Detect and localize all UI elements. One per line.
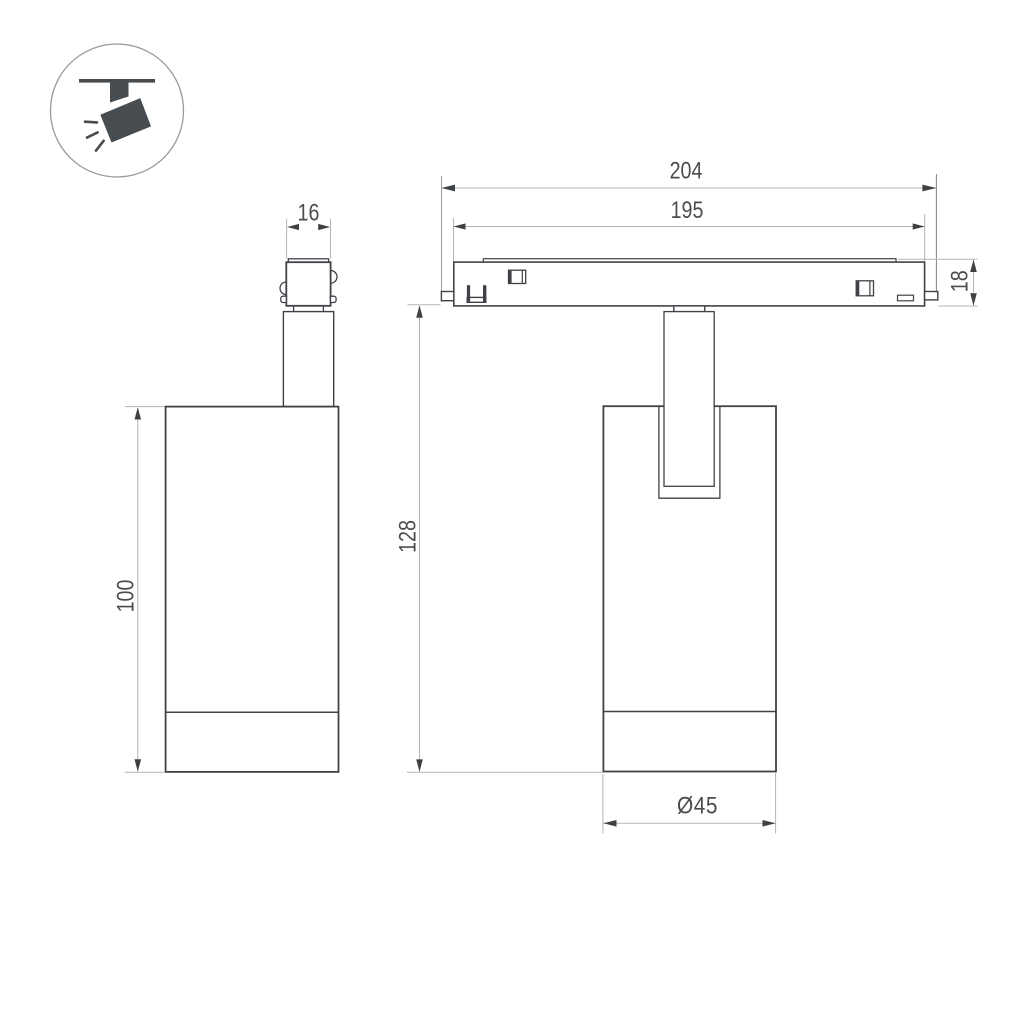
svg-text:Ø45: Ø45 <box>677 792 718 819</box>
svg-text:204: 204 <box>670 157 703 184</box>
svg-text:195: 195 <box>671 196 704 223</box>
svg-text:18: 18 <box>945 270 972 292</box>
svg-text:16: 16 <box>298 199 320 226</box>
svg-text:100: 100 <box>111 580 138 613</box>
svg-text:128: 128 <box>393 520 420 553</box>
